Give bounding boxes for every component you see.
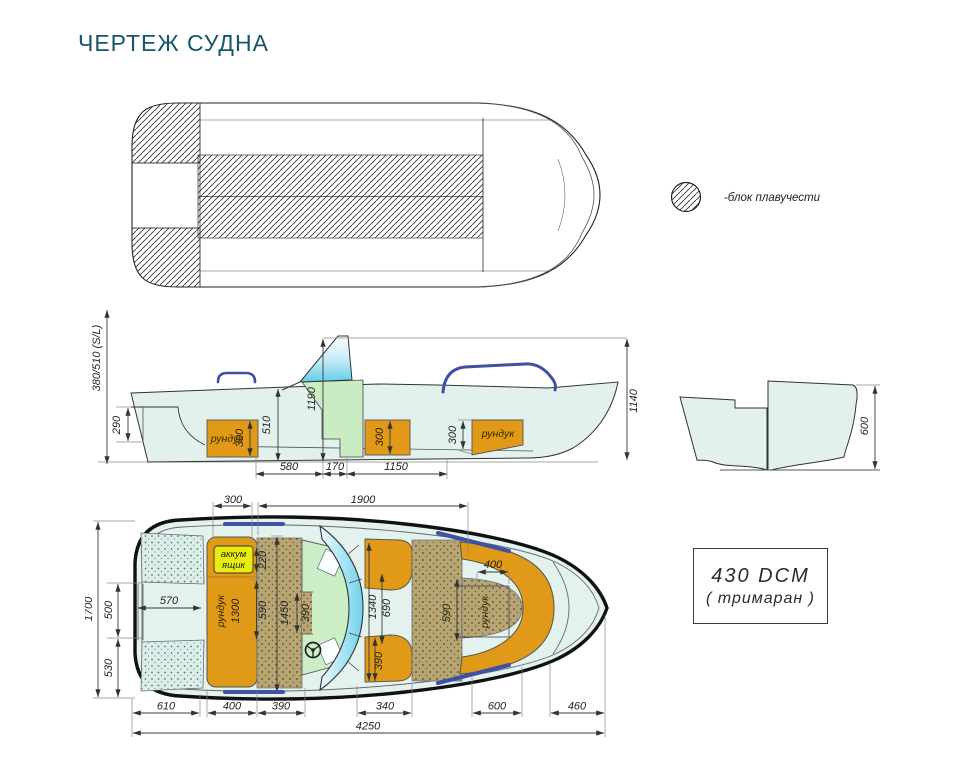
front-seat-top <box>365 539 412 590</box>
hull-bottom-view <box>118 93 610 297</box>
spec-model: 430 DCM <box>711 565 809 588</box>
battery-label-1: аккум <box>221 549 247 560</box>
dim-220: 220 <box>257 550 269 570</box>
steering-wheel-icon <box>306 643 321 658</box>
dim-500: 500 <box>103 600 115 619</box>
dim-300-mid: 300 <box>374 427 386 446</box>
dim-590-bow: 590 <box>441 603 453 622</box>
dim-590-mid: 590 <box>257 600 269 619</box>
dim-1340: 1340 <box>367 594 379 619</box>
dim-530: 530 <box>103 658 115 677</box>
legend-label: -блок плавучести <box>724 192 821 204</box>
spec-box: 430 DCM ( тримаран ) <box>693 548 828 624</box>
page-title: ЧЕРТЕЖ СУДНА <box>78 30 269 57</box>
dim-580: 580 <box>280 461 299 473</box>
transom-half-left <box>680 397 767 470</box>
locker-right-label: рундук <box>481 428 515 440</box>
dim-510: 510 <box>261 415 273 434</box>
dim-400-bow: 400 <box>484 559 503 571</box>
side-view: 380/510 (S/L) рундук 300 300 рундук 300 <box>88 298 668 502</box>
stern-platform-top <box>141 533 204 584</box>
dim-390-seat: 390 <box>373 651 385 670</box>
dim-690: 690 <box>381 598 393 617</box>
dim-460: 460 <box>568 701 587 713</box>
dim-600-bottom: 600 <box>488 701 507 713</box>
dim-170: 170 <box>326 461 345 473</box>
dim-340: 340 <box>376 701 395 713</box>
dim-1300: 1300 <box>230 598 242 623</box>
locker-main-label: рундук <box>215 594 227 628</box>
dim-570: 570 <box>160 595 179 607</box>
dim-1190: 1190 <box>306 386 318 411</box>
dim-1150: 1150 <box>384 461 409 473</box>
legend: -блок плавучести <box>660 176 910 220</box>
transom-half-right <box>768 381 857 470</box>
stern-platform-bottom <box>141 640 204 691</box>
locker-left-side: рундук 300 <box>207 420 258 457</box>
locker-mid-side: 300 <box>365 420 410 455</box>
dim-300-top: 300 <box>224 495 243 506</box>
buoyancy-legend-icon <box>672 183 701 212</box>
blueprint-canvas: ЧЕРТЕЖ СУДНА -блок плавучести <box>0 0 964 763</box>
cockpit-floor-front <box>412 540 462 681</box>
dim-1700: 1700 <box>85 596 95 621</box>
dim-390-console: 390 <box>300 603 312 622</box>
dim-290: 290 <box>111 415 123 435</box>
plan-view: 570 аккум ящик рундук 1300 220 590 1450 … <box>85 495 760 757</box>
dim-1900: 1900 <box>351 495 376 506</box>
stern-railing <box>218 373 255 382</box>
dim-390-bottom: 390 <box>272 701 291 713</box>
dim-300-left: 300 <box>234 428 246 447</box>
dim-1450: 1450 <box>279 600 291 625</box>
axis-label: 380/510 (S/L) <box>91 324 103 391</box>
dim-1140: 1140 <box>628 388 640 413</box>
windshield-side <box>300 336 352 382</box>
dim-610: 610 <box>157 701 176 713</box>
battery-label-2: ящик <box>221 560 245 571</box>
dim-300-right: 300 <box>447 425 459 444</box>
dim-400-bottom: 400 <box>223 701 242 713</box>
dim-600: 600 <box>859 416 871 435</box>
transom-view: 600 <box>675 358 890 493</box>
dim-4250: 4250 <box>356 721 381 733</box>
spec-type: ( тримаран ) <box>706 590 815 608</box>
locker-bow-label: рундук <box>479 595 491 629</box>
